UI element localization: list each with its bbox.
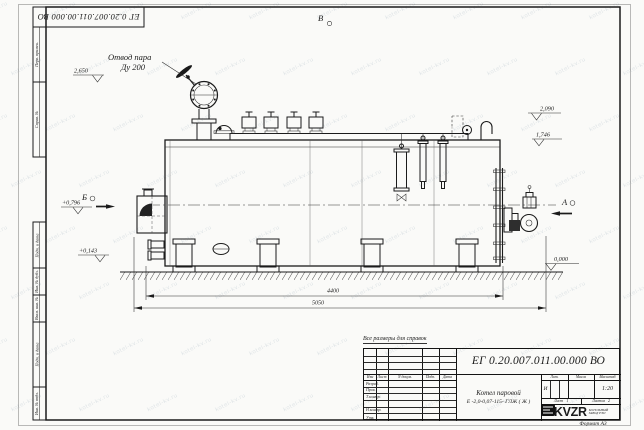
logo-subtext: КОТЕЛЬНЫЙ ЗАВОД РЭП (589, 409, 608, 416)
product-name-line1: Котел паровой (476, 389, 521, 397)
col-dokum: N докум. (388, 374, 422, 381)
manhole (213, 244, 229, 255)
kvzr-logo-icon (541, 404, 555, 416)
top-stamp: ЕГ 0.20.007.011.00.000 ВО (33, 7, 144, 27)
steam-valve (175, 64, 218, 140)
boiler-shell (148, 134, 556, 267)
elevation-mark-2650: 2,650 (73, 68, 104, 83)
top-platform (230, 134, 468, 141)
elevation-1746-label: 1,746 (536, 132, 551, 139)
scale-value: 1:20 (594, 380, 621, 398)
company-logo: KVZR КОТЕЛЬНЫЙ ЗАВОД РЭП (541, 404, 621, 422)
view-a-label: А (561, 197, 568, 207)
view-marker-a: А (551, 197, 575, 216)
side-label-podp-data-2: Подп. и дата (4, 348, 69, 361)
elevation-mark-0143: +0,143 (78, 248, 109, 262)
safety-valves (242, 112, 323, 134)
side-label-inv-podl: Инв. № подл. (20, 397, 53, 410)
product-name: Котел паровой Е -2,0-0,07-115- ГЛЖ ( Ж ) (456, 374, 541, 422)
callout-line1: Отвод пара (108, 52, 151, 62)
drawing-sheet: { "sheet": { "top_stamp": "ЕГ 0.20.007.0… (0, 0, 644, 430)
steam-outlet-callout: Отвод пара Ду 200 (108, 52, 196, 84)
elevation-2650-label: 2,650 (74, 68, 89, 75)
elevation-2090-label: 2,090 (540, 106, 555, 113)
dimension-4400: 4400 (146, 266, 503, 300)
elevation-mark-0000: 0,000 (545, 256, 579, 270)
view-marker-b: Б (81, 192, 115, 209)
elevation-0796-label: +0,796 (62, 200, 81, 207)
rear-top-fittings (452, 116, 492, 140)
elevation-mark-1746: 1,746 (532, 132, 562, 146)
row-nkontr: Н.контр. (364, 407, 390, 414)
valve-handwheel (175, 64, 193, 80)
view-b-label: Б (81, 192, 87, 202)
side-label-vzam-inv: Взам. инв. № (23, 302, 50, 315)
elevation-0143-label: +0,143 (79, 248, 97, 255)
ground-hatch (120, 272, 563, 280)
row-prov: Пров. (364, 387, 390, 394)
elevation-mark-0796: +0,796 (61, 200, 92, 214)
dim-5050-label: 5050 (312, 301, 324, 307)
logo-text: KVZR (554, 405, 587, 419)
steam-dome (214, 126, 234, 134)
side-label-inv-dubl: Инв. № дубл. (23, 275, 50, 288)
col-data: Дата (439, 374, 456, 381)
view-v-label: В (318, 13, 323, 23)
format-label: Формат А3 (570, 421, 616, 427)
product-name-line2: Е -2,0-0,07-115- ГЛЖ ( Ж ) (467, 399, 531, 405)
elevation-mark-2090: 2,090 (528, 106, 561, 121)
callout-line2: Ду 200 (120, 62, 146, 72)
front-burner-box (137, 189, 167, 260)
doc-number: ЕГ 0.20.007.011.00.000 ВО (456, 349, 621, 374)
row-utv: Утв. (364, 413, 390, 421)
side-label-podp-data-1: Подп. и дата (14, 239, 60, 252)
row-tkontr: Т.контр. (364, 393, 390, 400)
level-gauges (394, 134, 448, 201)
side-label-perv-primen: Перв. примен. (9, 48, 64, 61)
col-podp: Подп. (422, 374, 439, 381)
side-label-sprav: Справ. № (0, 113, 74, 126)
view-marker-v: В (318, 13, 332, 26)
mass-label: Масса (568, 374, 594, 381)
lit-value: И (541, 380, 550, 398)
row-razrab: Разраб. (364, 380, 390, 387)
title-block: Изм Лист N докум. Подп. Дата Разраб. Про… (363, 348, 620, 420)
elevation-0000-label: 0,000 (554, 256, 569, 263)
dim-4400-label: 4400 (327, 288, 339, 295)
reference-note: Все размеры для справок (363, 336, 427, 344)
